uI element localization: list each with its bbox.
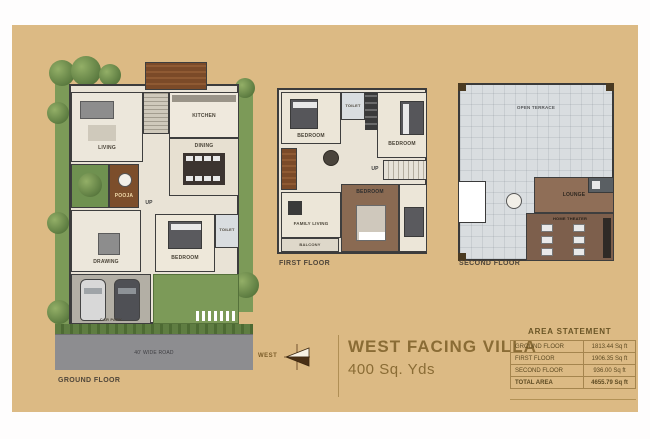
road-label: 40' WIDE ROAD [55,350,253,356]
staircase [143,92,169,134]
courtyard [71,164,109,208]
wood-deck [145,62,207,90]
row-value: 4655.79 Sq ft [584,377,636,389]
sheet-subtitle: 400 Sq. Yds [348,361,435,378]
row-value: 1906.35 Sq ft [584,353,636,365]
theater-seat-icon [541,248,553,256]
room-bedroom2: BEDROOM [377,92,427,158]
corner-mark [458,83,466,91]
road: 40' WIDE ROAD [55,334,253,370]
plant-icon [78,173,102,197]
room-family-living: FAMILY LIVING [281,192,341,238]
kitchen-counter-icon [172,95,236,102]
area-statement-header: AREA STATEMENT [528,327,636,336]
fence-icon [196,311,236,321]
room-home-theater: HOME THEATER [526,213,614,261]
room-living: LIVING [71,92,143,162]
first-floor-plan: BEDROOM TOILET BEDROOM FAMILY LIV [277,88,427,254]
bed-icon [404,207,424,237]
table-row: GROUND FLOOR 1813.44 Sq ft [511,341,636,353]
theater-seat-icon [573,248,585,256]
car-park: CAR PARK [71,274,151,324]
tree-icon [47,212,69,234]
table-row: FIRST FLOOR 1906.35 Sq ft [511,353,636,365]
villa-floorplan-sheet: LIVING KITCHEN DINING [0,0,650,439]
room-label: BEDROOM [156,255,214,261]
room-bedroom: BEDROOM [155,214,215,272]
table-row: SECOND FLOOR 936.00 Sq ft [511,365,636,377]
row-label: FIRST FLOOR [511,353,584,365]
round-rug-icon [323,150,339,166]
room-label: HOME THEATER [527,216,613,222]
room-label: BEDROOM [342,189,398,195]
room-label: BEDROOM [378,141,426,147]
room-toilet: TOILET [215,214,239,248]
sofa-icon [80,101,114,119]
stairs-up-label: UP [365,166,385,172]
room-label: DRAWING [72,259,140,265]
compass-west-label: WEST [258,353,277,359]
lawn [153,274,239,324]
rug-icon [88,125,116,141]
bed-icon [356,205,386,241]
theater-seat-icon [541,236,553,244]
room-label: BEDROOM [282,133,340,139]
round-table-icon [118,173,132,187]
stairs-up-label: UP [139,200,159,206]
room-dining: DINING [169,138,239,196]
second-floor-caption: SECOND FLOOR [459,260,520,267]
staircase [383,160,427,180]
room-bedroom1: BEDROOM [281,92,341,144]
row-label: GROUND FLOOR [511,341,584,353]
tree-icon [47,102,69,124]
area-statement-table: GROUND FLOOR 1813.44 Sq ft FIRST FLOOR 1… [510,340,636,389]
bed-icon [290,99,318,129]
tree-icon [47,300,71,324]
room-label: FAMILY LIVING [282,221,340,227]
room-label: KITCHEN [170,113,238,119]
bed-icon [400,101,424,135]
room-label: BALCONY [282,242,338,248]
room-label: TOILET [342,103,364,109]
car-icon [80,279,106,321]
row-label: TOTAL AREA [511,377,584,389]
row-label: SECOND FLOOR [511,365,584,377]
room-toilet1: TOILET [341,92,365,120]
room-bedroom4 [399,184,427,252]
wardrobe-icon [365,92,377,130]
toilet-block [588,177,614,193]
ground-floor-caption: GROUND FLOOR [58,377,120,384]
tree-icon [99,64,121,86]
second-floor-plan: OPEN TERRACE LOUNGE HOME THEATER [458,83,614,261]
room-pooja: POOJA [109,164,139,208]
room-label: CAR PARK [72,317,150,323]
ground-floor-plan: LIVING KITCHEN DINING [55,62,253,370]
panel-underline [510,399,636,400]
hedge-row [55,324,253,334]
table-row-total: TOTAL AREA 4655.79 Sq ft [511,377,636,389]
car-icon [114,279,140,321]
room-label: DINING [170,143,238,149]
area-statement-panel: AREA STATEMENT GROUND FLOOR 1813.44 Sq f… [510,327,636,389]
tree-icon [71,56,101,86]
tan-board: LIVING KITCHEN DINING [12,25,638,412]
row-value: 1813.44 Sq ft [584,341,636,353]
media-wall-icon [603,218,611,258]
compass-icon [283,343,311,371]
corner-mark [606,83,614,91]
wood-balcony [281,148,297,190]
landing [458,181,486,223]
room-label: POOJA [110,193,138,199]
terrace-label: OPEN TERRACE [460,105,612,111]
theater-seat-icon [573,236,585,244]
room-balcony: BALCONY [281,238,339,252]
sheet-title: WEST FACING VILLA [348,337,537,357]
room-drawing: DRAWING [71,210,141,272]
title-divider [338,335,339,397]
theater-seat-icon [541,224,553,232]
theater-seat-icon [573,224,585,232]
round-table-icon [506,193,522,209]
tv-icon [288,201,302,215]
row-value: 936.00 Sq ft [584,365,636,377]
dining-table-icon [183,153,225,185]
room-label: TOILET [216,227,238,233]
sofa-icon [98,233,120,255]
room-kitchen: KITCHEN [169,92,239,138]
first-floor-caption: FIRST FLOOR [279,260,330,267]
room-label: LIVING [72,145,142,151]
room-bedroom3: BEDROOM [341,184,399,252]
bed-icon [168,221,202,249]
